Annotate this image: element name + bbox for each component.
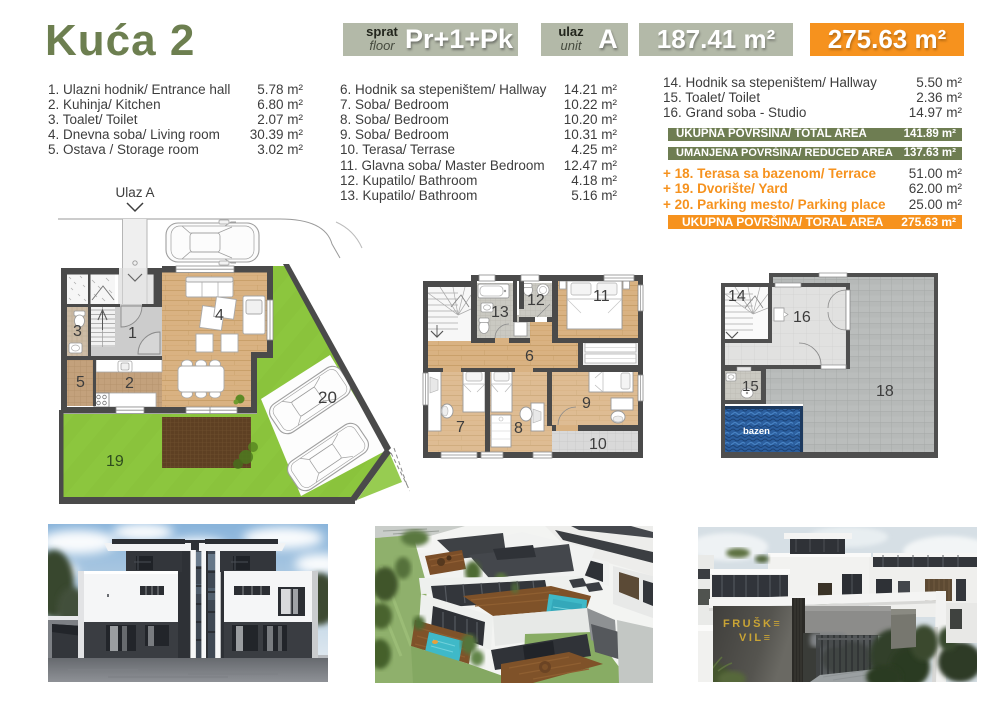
svg-text:3: 3: [73, 323, 82, 340]
svg-text:8: 8: [514, 420, 523, 437]
svg-text:12: 12: [527, 292, 545, 309]
svg-text:19: 19: [106, 453, 124, 470]
svg-text:2: 2: [125, 375, 134, 392]
svg-text:16: 16: [793, 309, 811, 326]
svg-text:VIL≡: VIL≡: [739, 632, 773, 644]
svg-text:10: 10: [589, 436, 607, 453]
svg-text:FRUŠK≡: FRUŠK≡: [723, 617, 782, 630]
svg-text:15: 15: [742, 378, 759, 395]
svg-text:4: 4: [215, 307, 224, 324]
svg-text:13: 13: [491, 304, 509, 321]
svg-text:6: 6: [525, 348, 534, 365]
svg-text:9: 9: [582, 395, 591, 412]
svg-text:5: 5: [76, 374, 85, 391]
svg-text:11: 11: [593, 288, 610, 305]
svg-text:7: 7: [456, 419, 465, 436]
svg-text:bazen: bazen: [743, 426, 770, 437]
svg-text:20: 20: [318, 388, 337, 407]
svg-text:1: 1: [128, 325, 137, 342]
svg-text:14: 14: [728, 288, 746, 305]
svg-text:18: 18: [876, 383, 894, 400]
